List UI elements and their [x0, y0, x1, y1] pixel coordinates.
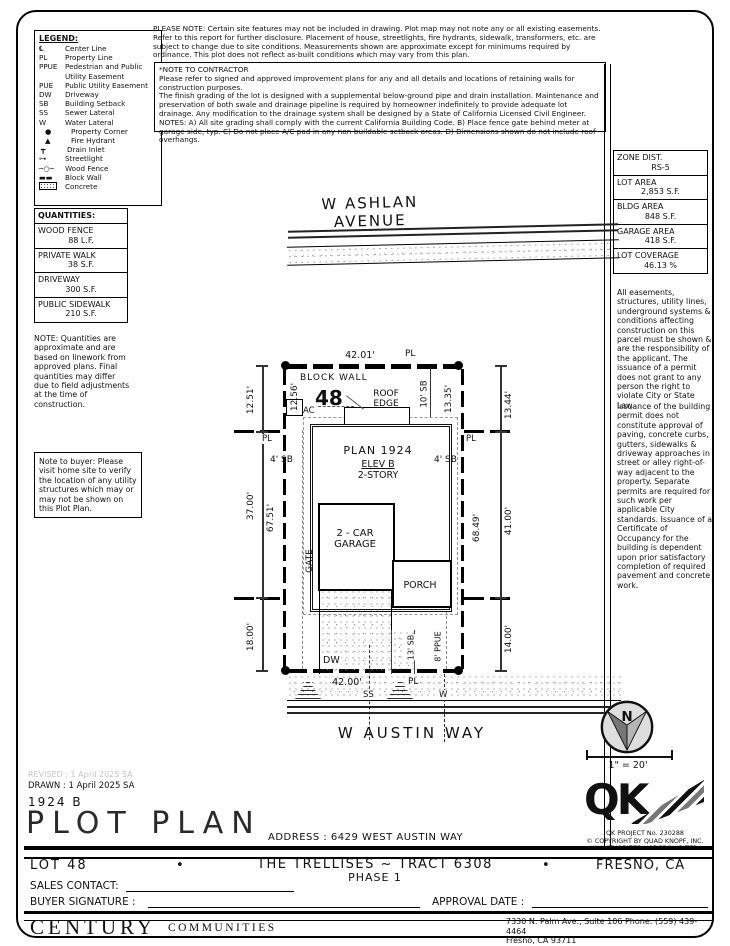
pl-label-right: PL: [466, 434, 476, 444]
sb4-right-label: 4' SB: [434, 455, 457, 465]
contractor-note-p2: The finish grading of the lot is designe…: [159, 92, 601, 118]
wood-fence-icon: ─○─: [39, 164, 65, 173]
fire-hydrant-icon: ▲: [39, 136, 71, 145]
story-label: 2-STORY: [327, 470, 429, 481]
drain-inlet-icon: ┳: [39, 145, 67, 154]
pl-label-top: PL: [405, 349, 415, 359]
quantity-value: 210 S.F.: [38, 309, 124, 319]
lot-coverage-cell: LOT COVERAGE46.13 %: [613, 248, 708, 274]
legend-label: Building Setback: [65, 99, 157, 108]
dim-right-1: 13.44': [502, 382, 516, 428]
quantity-row: DRIVEWAY300 S.F.: [34, 272, 128, 298]
scale-label: 1" = 20': [588, 760, 668, 771]
legend-label: Property Line: [65, 53, 157, 62]
quantities-note: NOTE: Quantities are approximate and are…: [34, 334, 132, 409]
pl-label-left: PL: [262, 434, 272, 444]
legend-label: Sewer Lateral: [65, 108, 157, 117]
block-wall-line: [287, 364, 459, 369]
center-line-icon: ℄: [39, 44, 65, 53]
quantity-name: DRIVEWAY: [38, 275, 80, 284]
property-line-right: [461, 369, 464, 669]
quantity-value: 38 S.F.: [38, 260, 124, 270]
dim-tick: [256, 670, 268, 672]
property-line-symbol: PL: [39, 53, 65, 62]
dim-inner-right: 68.49': [470, 500, 484, 556]
block-wall-icon: ▬▬: [39, 173, 65, 182]
lot-area-cell: LOT AREA2,853 S.F.: [613, 175, 708, 201]
dim-ppue8: 8' PPUE: [432, 622, 445, 670]
dim-tick: [495, 670, 507, 672]
ac-label: AC: [303, 406, 315, 416]
elev-label: ELEV B: [327, 459, 429, 470]
zone-label: BLDG AREA: [617, 202, 663, 211]
quantity-value: 88 L.F.: [38, 236, 124, 246]
roof-edge-label: ROOF EDGE: [362, 389, 410, 409]
zone-value: 848 S.F.: [617, 212, 704, 222]
contractor-note-p1: Please refer to signed and approved impr…: [159, 75, 601, 93]
sales-contact-line: [126, 881, 294, 892]
north-arrow-icon: N: [598, 698, 656, 756]
dim-left-1: 12.51': [244, 378, 258, 422]
north-letter: N: [621, 709, 632, 725]
legend-label: Driveway: [65, 90, 157, 99]
bullet-separator: •: [176, 858, 184, 873]
zone-label: LOT COVERAGE: [617, 251, 679, 260]
porch-label: PORCH: [392, 580, 448, 591]
brand-century: CENTURY: [30, 915, 156, 940]
scale-bar-tick: [671, 750, 673, 760]
tract-line: THE TRELLISES ~ TRACT 6308: [210, 857, 540, 872]
bldg-area-cell: BLDG AREA848 S.F.: [613, 199, 708, 225]
right-note-1: All easements, structures, utility lines…: [617, 288, 713, 410]
legend-label: Center Line: [65, 44, 157, 53]
setback-symbol: SB: [39, 99, 65, 108]
streetlight-icon: ⊶: [39, 154, 65, 163]
w-label: W: [437, 690, 449, 700]
quantity-row: PRIVATE WALK38 S.F.: [34, 248, 128, 274]
quantities-table: QUANTITIES: WOOD FENCE88 L.F. PRIVATE WA…: [34, 210, 128, 323]
scale-bar: [586, 756, 672, 758]
revised-line: REVISED : 1 April 2025 SA: [28, 770, 133, 779]
dim-tick: [495, 597, 507, 599]
address-line: ADDRESS : 6429 WEST AUSTIN WAY: [268, 832, 463, 843]
quantity-row: WOOD FENCE88 L.F.: [34, 223, 128, 249]
dim-inner-right-top: 13.35': [442, 378, 456, 420]
legend-label: Streetlight: [65, 154, 157, 163]
legend-label: Fire Hydrant: [71, 136, 157, 145]
legend-label: Pedestrian and Public Utility Easement: [65, 62, 157, 80]
lot-line: LOT 48: [30, 858, 88, 873]
plot-plan-sheet: LEGEND: ℄Center Line PLProperty Line PPU…: [0, 0, 730, 946]
zone-dist-cell: ZONE DIST.RS-5: [613, 150, 708, 176]
zone-value: 2,853 S.F.: [617, 187, 704, 197]
sewer-symbol: SS: [39, 108, 65, 117]
zone-label: ZONE DIST.: [617, 153, 662, 162]
garage-label: 2 - CAR GARAGE: [320, 528, 390, 550]
dim-inner-left-top: 12.56': [288, 376, 302, 418]
dim-tick: [256, 431, 268, 433]
legend-label: Public Utility Easement: [65, 81, 157, 90]
dim-tick: [495, 431, 507, 433]
quantity-name: WOOD FENCE: [38, 226, 94, 235]
approval-date-line: [532, 897, 708, 908]
legend-box: LEGEND: ℄Center Line PLProperty Line PPU…: [34, 30, 162, 206]
zoning-table: ZONE DIST.RS-5 LOT AREA2,853 S.F. BLDG A…: [613, 152, 708, 274]
drawn-line: DRAWN : 1 April 2025 SA: [28, 781, 134, 791]
quantity-name: PUBLIC SIDEWALK: [38, 300, 110, 309]
sb4-left-label: 4' SB: [270, 455, 293, 465]
water-symbol: W: [39, 118, 65, 127]
legend-label: Wood Fence: [65, 164, 157, 173]
zone-value: 418 S.F.: [617, 236, 704, 246]
legend-label: Property Corner: [71, 127, 157, 136]
dim-left-3: 18.00': [244, 612, 258, 662]
zone-value: RS-5: [617, 163, 704, 173]
brand-communities: COMMUNITIES: [168, 922, 277, 934]
legend-label: Water Lateral: [65, 118, 157, 127]
buyer-signature-label: BUYER SIGNATURE :: [30, 896, 136, 908]
dim-tick: [256, 365, 268, 367]
street-line: [287, 712, 621, 714]
dim-sb10: 10' SB: [418, 372, 432, 416]
footer-address-line2: Fresno, CA 93711: [506, 936, 710, 946]
quantity-value: 300 S.F.: [38, 285, 124, 295]
city-line: FRESNO, CA: [596, 858, 708, 873]
zone-value: 46.13 %: [617, 261, 704, 271]
adjacent-lot-line: [464, 430, 516, 433]
approval-date-label: APPROVAL DATE :: [432, 896, 524, 908]
quantity-name: PRIVATE WALK: [38, 251, 96, 260]
footer-address: 7330 N. Palm Ave., Suite 106 Phone: (559…: [506, 917, 710, 946]
garage-area-cell: GARAGE AREA418 S.F.: [613, 224, 708, 250]
driveway-symbol: DW: [39, 90, 65, 99]
dim-sb13: 13' SB: [404, 626, 417, 668]
legend-title: LEGEND:: [39, 34, 157, 43]
right-note-2: Issuance of the building permit does not…: [617, 402, 713, 590]
zone-label: GARAGE AREA: [617, 227, 675, 236]
sidewalk-austin: [287, 674, 621, 701]
dim-tick: [495, 365, 507, 367]
legend-label: Drain Inlet: [67, 145, 157, 154]
contractor-note-box: *NOTE TO CONTRACTOR Please refer to sign…: [154, 62, 606, 132]
footer-address-line1: 7330 N. Palm Ave., Suite 106 Phone: (559…: [506, 917, 710, 936]
dw-label: DW: [322, 655, 341, 666]
dim-right-3: 14.00': [502, 614, 516, 664]
contractor-note-p3: NOTES: A) All site grading shall comply …: [159, 119, 601, 145]
street-line: [287, 706, 621, 708]
buyer-note-box: Note to buyer: Please visit home site to…: [34, 452, 142, 518]
dim-tick: [256, 597, 268, 599]
dim-right-2: 41.00': [502, 492, 516, 550]
scale-bar-tick: [586, 750, 588, 760]
street-name-austin: W AUSTIN WAY: [312, 724, 512, 742]
quantity-row: PUBLIC SIDEWALK210 S.F.: [34, 297, 128, 323]
ppue-symbol: PPUE: [39, 62, 65, 80]
concrete-swatch-icon: [39, 182, 65, 192]
street-name-ashlan: W ASHLAN AVENUE: [285, 192, 456, 232]
dim-left-2: 37.00': [244, 478, 258, 534]
plan-label: PLAN 1924: [327, 444, 429, 457]
dim-top: 42.01': [325, 350, 395, 361]
sheet-title: PLOT PLAN: [26, 806, 262, 841]
block-wall-label: BLOCK WALL: [300, 373, 368, 383]
legend-label: Concrete: [65, 182, 157, 192]
ss-label: SS: [361, 690, 376, 700]
qk-logo: QK: [584, 779, 646, 821]
sales-contact-label: SALES CONTACT:: [30, 880, 119, 892]
gate-label: GATE: [303, 537, 317, 585]
legend-label: Block Wall: [65, 173, 157, 182]
pue-symbol: PUE: [39, 81, 65, 90]
please-note-text: PLEASE NOTE: Certain site features may n…: [153, 25, 601, 60]
adjacent-lot-line: [464, 597, 516, 600]
zone-label: LOT AREA: [617, 178, 656, 187]
lot-number: 48: [315, 386, 343, 410]
bullet-separator: •: [542, 858, 550, 873]
buyer-signature-line: [148, 897, 420, 908]
dim-inner-left: 67.51': [264, 490, 278, 546]
property-corner-icon: ●: [39, 127, 71, 136]
